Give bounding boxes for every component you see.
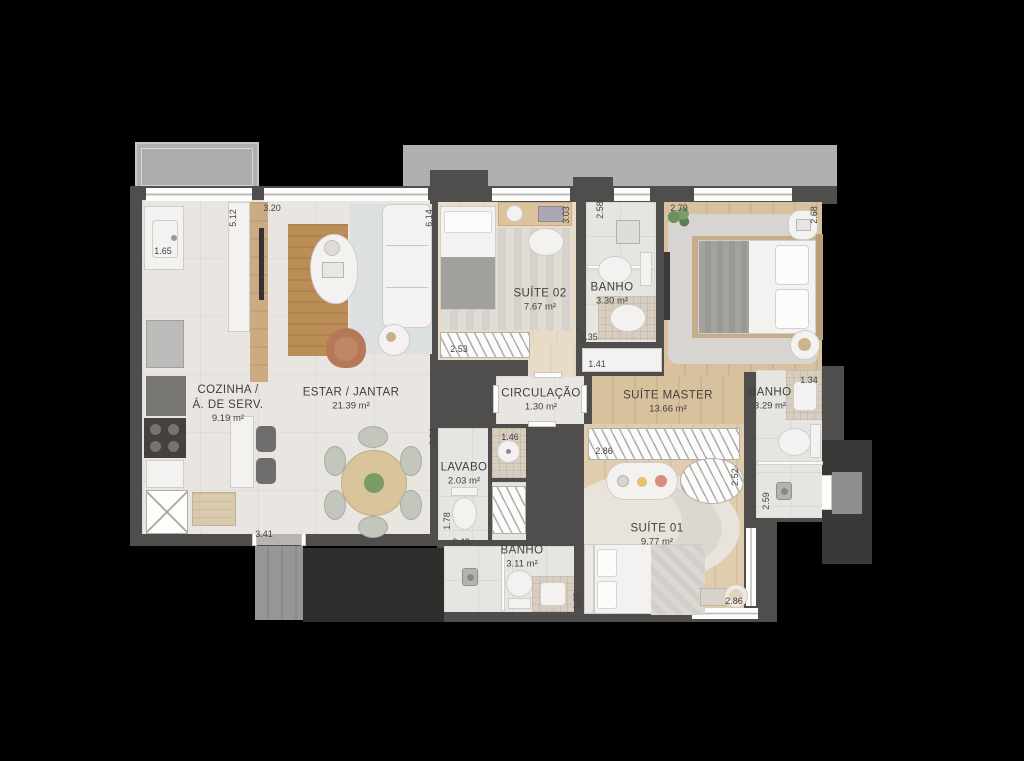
kitchen-peninsula — [230, 416, 254, 488]
burner-icon — [150, 424, 161, 435]
stool — [256, 426, 276, 452]
room-label-estar: ESTAR / JANTAR 21.39 m² — [303, 385, 400, 412]
suite01-bed — [594, 544, 704, 614]
room-label-banho-suite02: BANHO 3.30 m² — [591, 280, 634, 307]
suite01-headboard — [584, 544, 594, 614]
dim-living-depth: 6.14 — [424, 209, 434, 227]
suite02-stool — [528, 228, 564, 256]
suite02-bed — [440, 206, 496, 310]
room-area: 7.67 m² — [513, 301, 566, 313]
burner-icon — [168, 424, 179, 435]
side-table-decor — [386, 332, 396, 342]
room-area: 9.19 m² — [193, 413, 264, 425]
circulacao-jamb — [493, 385, 499, 413]
dim-master-width: 2.79 — [670, 203, 688, 213]
banho-suite02-window — [614, 188, 650, 201]
shower-head-icon — [462, 568, 478, 586]
suite01-pillow — [597, 581, 617, 609]
coffee-table-book — [322, 262, 344, 278]
entry-jamb-right — [301, 532, 306, 546]
suite02-mirror-icon — [506, 205, 523, 222]
suite01-pillow — [597, 549, 617, 577]
room-name: SUÍTE 02 — [513, 286, 566, 301]
dim-dining-wall: 2.04 — [428, 428, 438, 446]
stool — [256, 458, 276, 484]
room-area: 2.03 m² — [441, 475, 488, 487]
dim-kitchen-depth: 5.12 — [228, 209, 238, 227]
service-door — [821, 475, 832, 510]
shower-head-icon — [776, 482, 792, 500]
burner-icon — [168, 441, 179, 452]
banho-master-toilet — [778, 428, 811, 456]
room-area: 3.30 m² — [591, 295, 634, 307]
circulacao-jamb — [581, 385, 587, 413]
banho-suite02-toilet-tank — [640, 252, 652, 286]
room-name: ESTAR / JANTAR — [303, 385, 400, 400]
dim-suite02-wardrobe: 2.53 — [450, 344, 468, 354]
room-area: 21.39 m² — [303, 400, 400, 412]
outside-dark-block — [303, 548, 444, 622]
fridge — [146, 460, 184, 488]
master-blanket — [699, 241, 749, 333]
room-name: BANHO — [501, 543, 544, 558]
coffee-table-vase — [324, 240, 340, 256]
dim-suite01-window: 2.86 — [725, 596, 743, 606]
kitchen-window — [146, 188, 252, 201]
dim-living-top-width: 3.20 — [263, 203, 281, 213]
room-area: 3.29 m² — [749, 400, 792, 412]
room-area: 13.66 m² — [623, 403, 713, 415]
master-headboard — [816, 234, 823, 340]
room-name: BANHO — [591, 280, 634, 295]
shower-dot — [781, 488, 788, 495]
sofa-cushion-line — [386, 245, 428, 246]
wall-chunk-top1 — [430, 170, 488, 192]
balcony-floor — [141, 148, 253, 186]
suite01-tray — [700, 588, 726, 606]
dim-lavabo-depth: 1.78 — [442, 512, 452, 530]
master-tv-icon — [664, 252, 670, 320]
room-label-cozinha: COZINHA / Á. DE SERV. 9.19 m² — [193, 383, 264, 425]
dim-banho-master-depth: 2.59 — [761, 492, 771, 510]
entry-corridor — [255, 546, 303, 620]
room-label-suite02: SUÍTE 02 7.67 m² — [513, 286, 566, 313]
armchair-seat — [334, 337, 358, 361]
banho-suite01-toilet — [506, 570, 533, 597]
dresser-tray — [655, 475, 667, 487]
armchair — [326, 328, 366, 368]
banho-master-sink — [793, 381, 817, 411]
room-name: CIRCULAÇÃO — [501, 386, 580, 401]
room-name: Á. DE SERV. — [193, 398, 264, 413]
master-bed — [698, 240, 816, 334]
dishwasher — [146, 320, 184, 368]
cooktop — [144, 418, 186, 458]
dining-chair — [358, 426, 388, 448]
banho-suite02-drain-icon — [616, 220, 640, 244]
dining-chair — [358, 516, 388, 538]
suite02-pillow — [444, 211, 492, 233]
kitchen-faucet-icon — [171, 235, 177, 241]
suite02-blanket — [441, 257, 495, 309]
room-label-circulacao: CIRCULAÇÃO 1.30 m² — [501, 386, 580, 413]
room-name: BANHO — [749, 385, 792, 400]
dim-suite01-closet: 2.52 — [730, 468, 740, 486]
dresser-tray — [637, 477, 647, 487]
dim-lavabo-niche: 1.46 — [501, 432, 519, 442]
banho-suite01-sink — [540, 582, 566, 606]
service-mat — [192, 492, 236, 526]
shower-dot — [467, 574, 474, 581]
lavabo-toilet-tank — [451, 487, 478, 496]
room-name: SUÍTE MASTER — [623, 388, 713, 403]
dining-chair — [400, 446, 422, 476]
room-area: 1.30 m² — [501, 401, 580, 413]
banho-suite02-sink — [610, 304, 646, 332]
master-pillow — [775, 245, 809, 285]
dim-suite02-depth: 3.03 — [561, 206, 571, 224]
room-label-banho-suite01: BANHO 3.11 m² — [501, 543, 544, 570]
balcony-slab — [135, 142, 259, 190]
suite01-blanket — [651, 545, 705, 615]
suite02-window — [492, 188, 570, 201]
sofa-cushion-line — [386, 287, 428, 288]
lavabo-faucet-icon — [506, 449, 511, 454]
master-window — [694, 188, 792, 201]
room-label-suite01: SUÍTE 01 9.77 m² — [630, 521, 683, 548]
banho-suite01-toilet-tank — [508, 598, 531, 609]
dim-kitchen-width: 1.65 — [154, 246, 172, 256]
dim-living-bottom: 3.41 — [255, 529, 273, 539]
room-area: 9.77 m² — [630, 536, 683, 548]
dim-banho-suite02-depth: 2.58 — [595, 201, 605, 219]
dim-banho-suite02-entry: 1.35 — [580, 332, 598, 342]
dining-chair — [400, 490, 422, 520]
room-label-lavabo: LAVABO 2.03 m² — [441, 460, 488, 487]
lavabo-toilet — [452, 497, 477, 530]
room-label-banho-master: BANHO 3.29 m² — [749, 385, 792, 412]
dim-banho-master-vanity: 1.34 — [800, 375, 818, 385]
room-area: 3.11 m² — [501, 558, 544, 570]
circulacao-jamb — [534, 372, 562, 378]
dim-banho-suite01-width: 2.43 — [452, 537, 470, 547]
floor-plan: COZINHA / Á. DE SERV. 9.19 m² ESTAR / JA… — [0, 0, 1024, 761]
dining-chair — [324, 490, 346, 520]
tv-icon — [259, 228, 264, 300]
dining-centerpiece — [364, 473, 384, 493]
lavabo-closet — [492, 486, 526, 534]
room-name: SUÍTE 01 — [630, 521, 683, 536]
dresser-knob — [617, 475, 629, 487]
dim-banho-suite01-wall: 1.35 — [572, 592, 582, 610]
nightstand-decor — [798, 338, 811, 351]
living-window — [264, 188, 428, 201]
banho-master-glass — [758, 462, 822, 464]
room-name: LAVABO — [441, 460, 488, 475]
laundry-tank — [146, 490, 188, 534]
oven — [146, 376, 186, 416]
banho-master-toilet-tank — [810, 424, 821, 458]
master-pillow — [775, 289, 809, 329]
burner-icon — [150, 441, 161, 452]
service-hall-square — [832, 472, 862, 514]
room-label-suite-master: SUÍTE MASTER 13.66 m² — [623, 388, 713, 415]
dining-chair — [324, 446, 346, 476]
dim-master-depth: 2.68 — [809, 206, 819, 224]
wall-chunk-top2 — [573, 177, 613, 191]
room-name: COZINHA / — [193, 383, 264, 398]
suite01-dresser — [606, 462, 678, 500]
dim-hall-niche: 1.41 — [588, 359, 606, 369]
dim-master-wardrobe: 2.86 — [595, 446, 613, 456]
circulacao-jamb — [528, 421, 556, 427]
